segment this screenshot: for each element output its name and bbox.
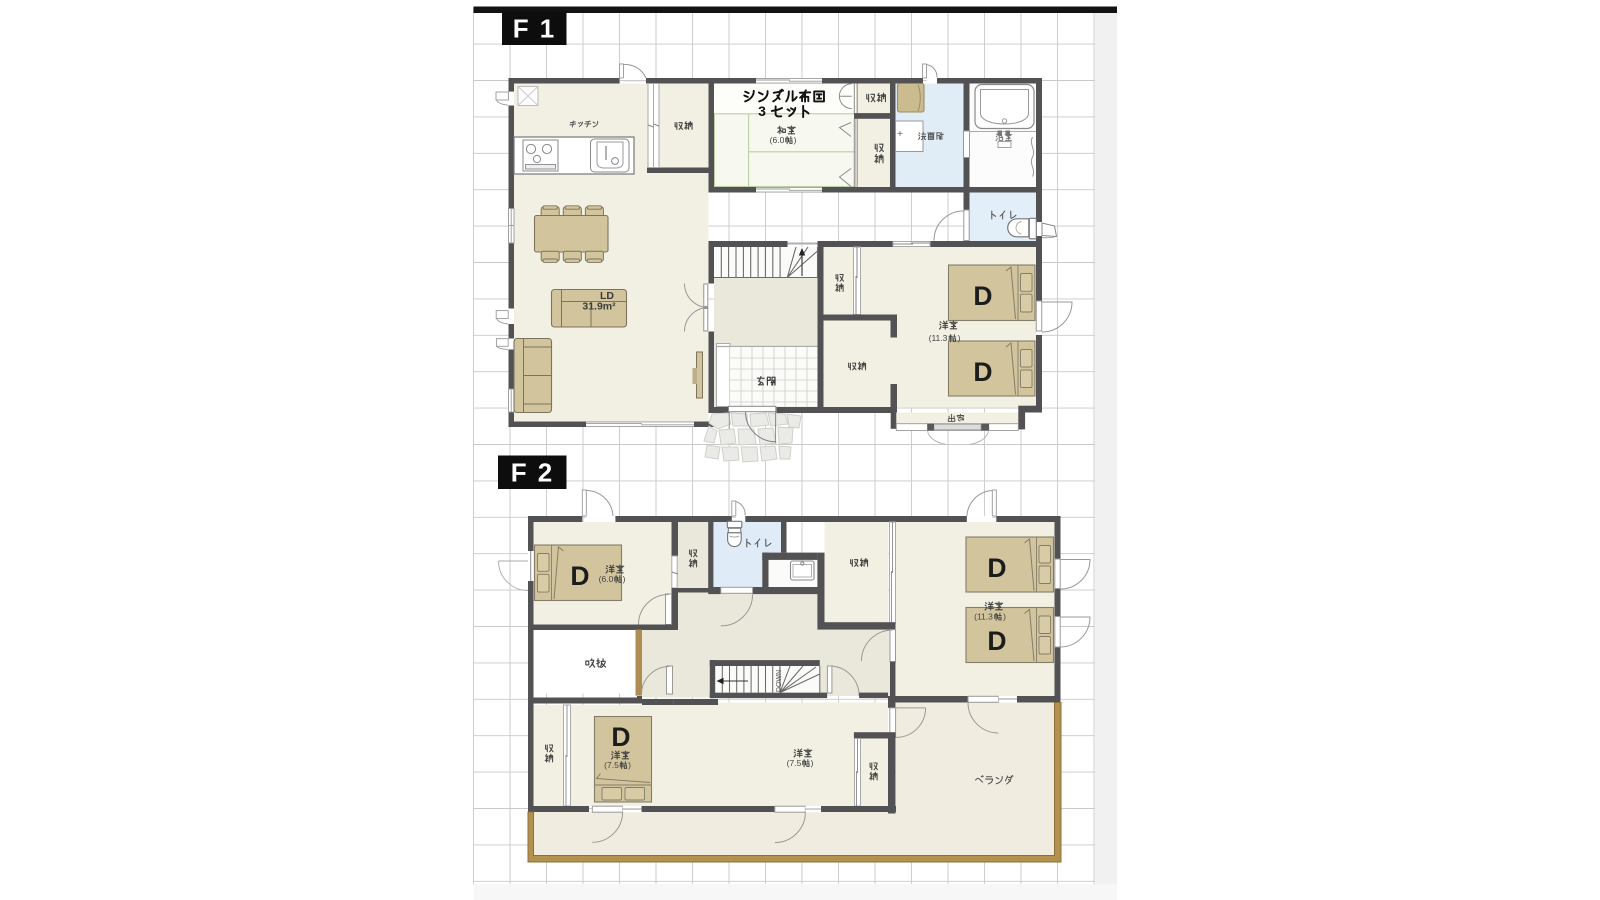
- svg-text:): ): [794, 135, 797, 145]
- svg-text:): ): [958, 333, 961, 343]
- svg-text:F 1: F 1: [513, 14, 557, 44]
- svg-text:D: D: [987, 626, 1006, 656]
- svg-text:(7.5: (7.5: [604, 760, 619, 770]
- svg-text:DOWN: DOWN: [776, 670, 783, 692]
- svg-text:): ): [811, 758, 814, 768]
- svg-text:3: 3: [758, 103, 766, 119]
- svg-text:D: D: [973, 281, 992, 311]
- svg-text:(11.3: (11.3: [974, 612, 993, 622]
- svg-text:(11.3: (11.3: [929, 333, 948, 343]
- svg-text:D: D: [570, 561, 589, 591]
- svg-text:(6.0: (6.0: [599, 574, 614, 584]
- svg-text:D: D: [973, 357, 992, 387]
- svg-text:31.9m²: 31.9m²: [582, 301, 616, 313]
- svg-text:F 2: F 2: [511, 458, 555, 488]
- svg-text:): ): [1003, 612, 1006, 622]
- svg-text:): ): [628, 760, 631, 770]
- svg-text:(6.0: (6.0: [770, 135, 785, 145]
- svg-text:D: D: [987, 553, 1006, 583]
- svg-text:): ): [623, 574, 626, 584]
- svg-text:(7.5: (7.5: [787, 758, 802, 768]
- svg-text:D: D: [611, 722, 630, 752]
